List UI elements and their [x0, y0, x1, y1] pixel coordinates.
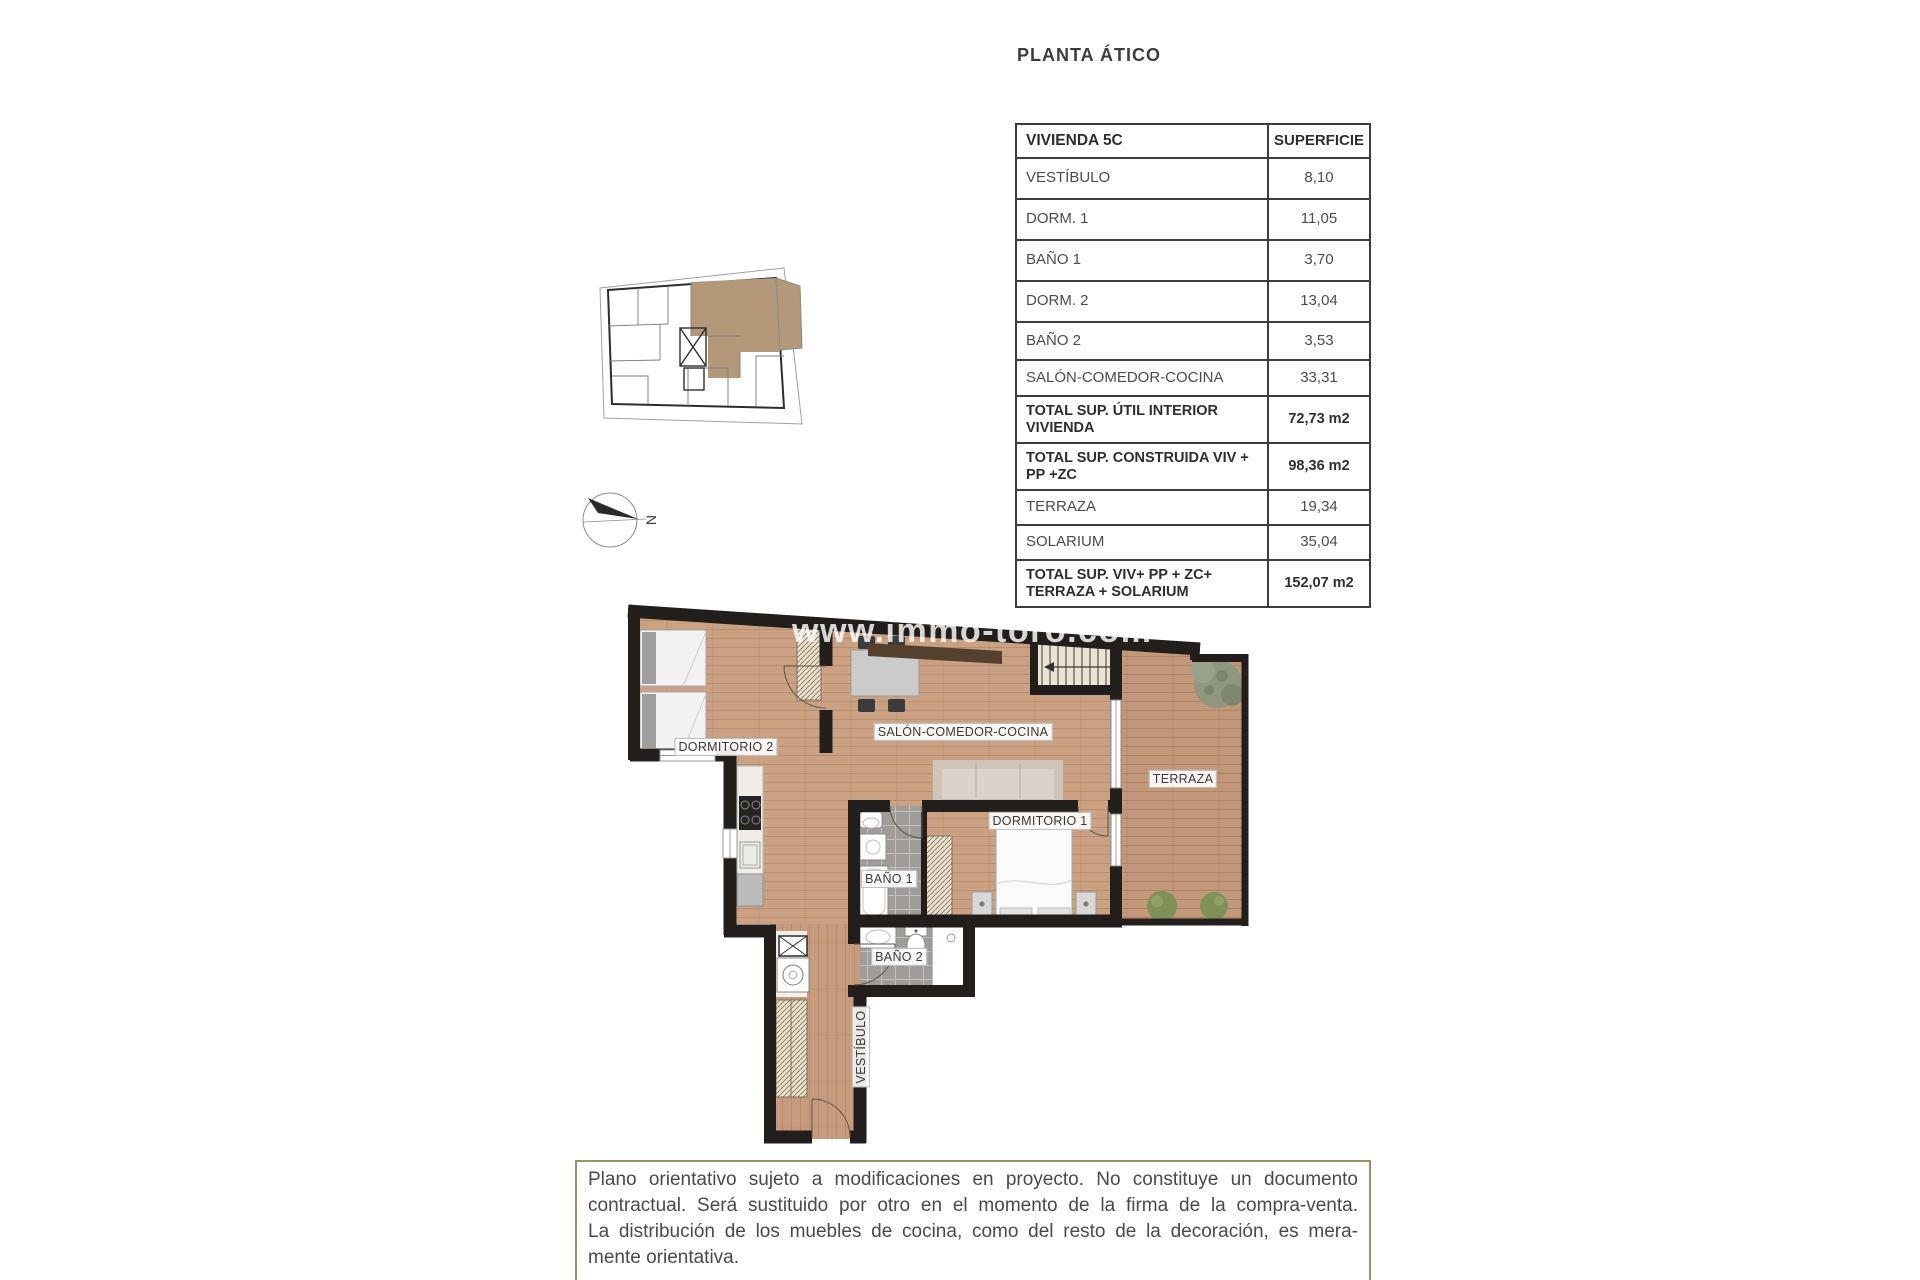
- room-label-salon: SALÓN-COMEDOR-COCINA: [874, 723, 1053, 741]
- compass-north-label: N: [643, 515, 659, 525]
- sofa: [933, 760, 1063, 800]
- fridge: [737, 874, 763, 906]
- nightstand: [1076, 892, 1096, 916]
- table-row: SALÓN-COMEDOR-COCINA33,31: [1017, 359, 1369, 395]
- room-label-bano-2: BAÑO 2: [871, 948, 927, 966]
- table-header-row: VIVIENDA 5C SUPERFICIE: [1017, 125, 1369, 157]
- shaft-box: [779, 936, 807, 956]
- page-title: PLANTA ÁTICO: [1017, 45, 1161, 66]
- table-row: DORM. 213,04: [1017, 280, 1369, 321]
- nightstand: [972, 892, 992, 916]
- washing-machine: [777, 958, 809, 992]
- table-row-total: TOTAL SUP. VIV+ PP + ZC+ TERRAZA + SOLAR…: [1017, 559, 1369, 606]
- north-arrow: [588, 498, 638, 519]
- table-row: DORM. 111,05: [1017, 198, 1369, 239]
- table-row: VESTÍBULO8,10: [1017, 157, 1369, 198]
- toilet: [860, 812, 882, 828]
- disclaimer-box: Plano orientativo sujeto a modificacione…: [575, 1160, 1371, 1280]
- compass-icon: N: [572, 478, 668, 562]
- wardrobe: [924, 836, 952, 920]
- table-row: BAÑO 23,53: [1017, 321, 1369, 359]
- single-bed: [640, 630, 706, 686]
- double-bed: [996, 824, 1072, 916]
- table-row-total: TOTAL SUP. ÚTIL INTERIOR VIVIENDA72,73 m…: [1017, 395, 1369, 442]
- room-label-vestibulo: VESTÍBULO: [852, 1007, 870, 1088]
- page: PLANTA ÁTICO VIVIENDA 5C SUPERFICIE VEST…: [0, 0, 1920, 1280]
- disclaimer-line: La distribución de los muebles de cocina…: [588, 1219, 1358, 1245]
- watermark: www.immo-toro.com: [792, 612, 1152, 651]
- disclaimer-line: contractual. Será sustituido por otro en…: [588, 1193, 1358, 1219]
- bathroom-sink: [860, 834, 886, 860]
- surface-table: VIVIENDA 5C SUPERFICIE VESTÍBULO8,10 DOR…: [1015, 123, 1371, 608]
- disclaimer-line: mente orientativa.: [588, 1245, 1358, 1271]
- closet: [776, 1000, 807, 1097]
- room-label-terraza: TERRAZA: [1149, 770, 1217, 788]
- kitchen-counter: [737, 766, 763, 906]
- table-header-unit: VIVIENDA 5C: [1017, 125, 1267, 157]
- table-row: BAÑO 13,70: [1017, 239, 1369, 280]
- table-header-area: SUPERFICIE: [1267, 125, 1369, 157]
- table-row-total: TOTAL SUP. CONSTRUIDA VIV + PP +ZC98,36 …: [1017, 442, 1369, 489]
- room-label-bano-1: BAÑO 1: [861, 870, 917, 888]
- table-row: SOLARIUM35,04: [1017, 524, 1369, 559]
- disclaimer-line: Plano orientativo sujeto a modificacione…: [588, 1167, 1358, 1193]
- location-key-plan: [588, 256, 806, 460]
- room-label-dormitorio-1: DORMITORIO 1: [988, 812, 1091, 830]
- bathroom-sink: [860, 926, 896, 948]
- table-row: TERRAZA19,34: [1017, 489, 1369, 524]
- floor-plan: [618, 600, 1266, 1162]
- room-label-dormitorio-2: DORMITORIO 2: [674, 738, 777, 756]
- glass-door: [1111, 700, 1121, 866]
